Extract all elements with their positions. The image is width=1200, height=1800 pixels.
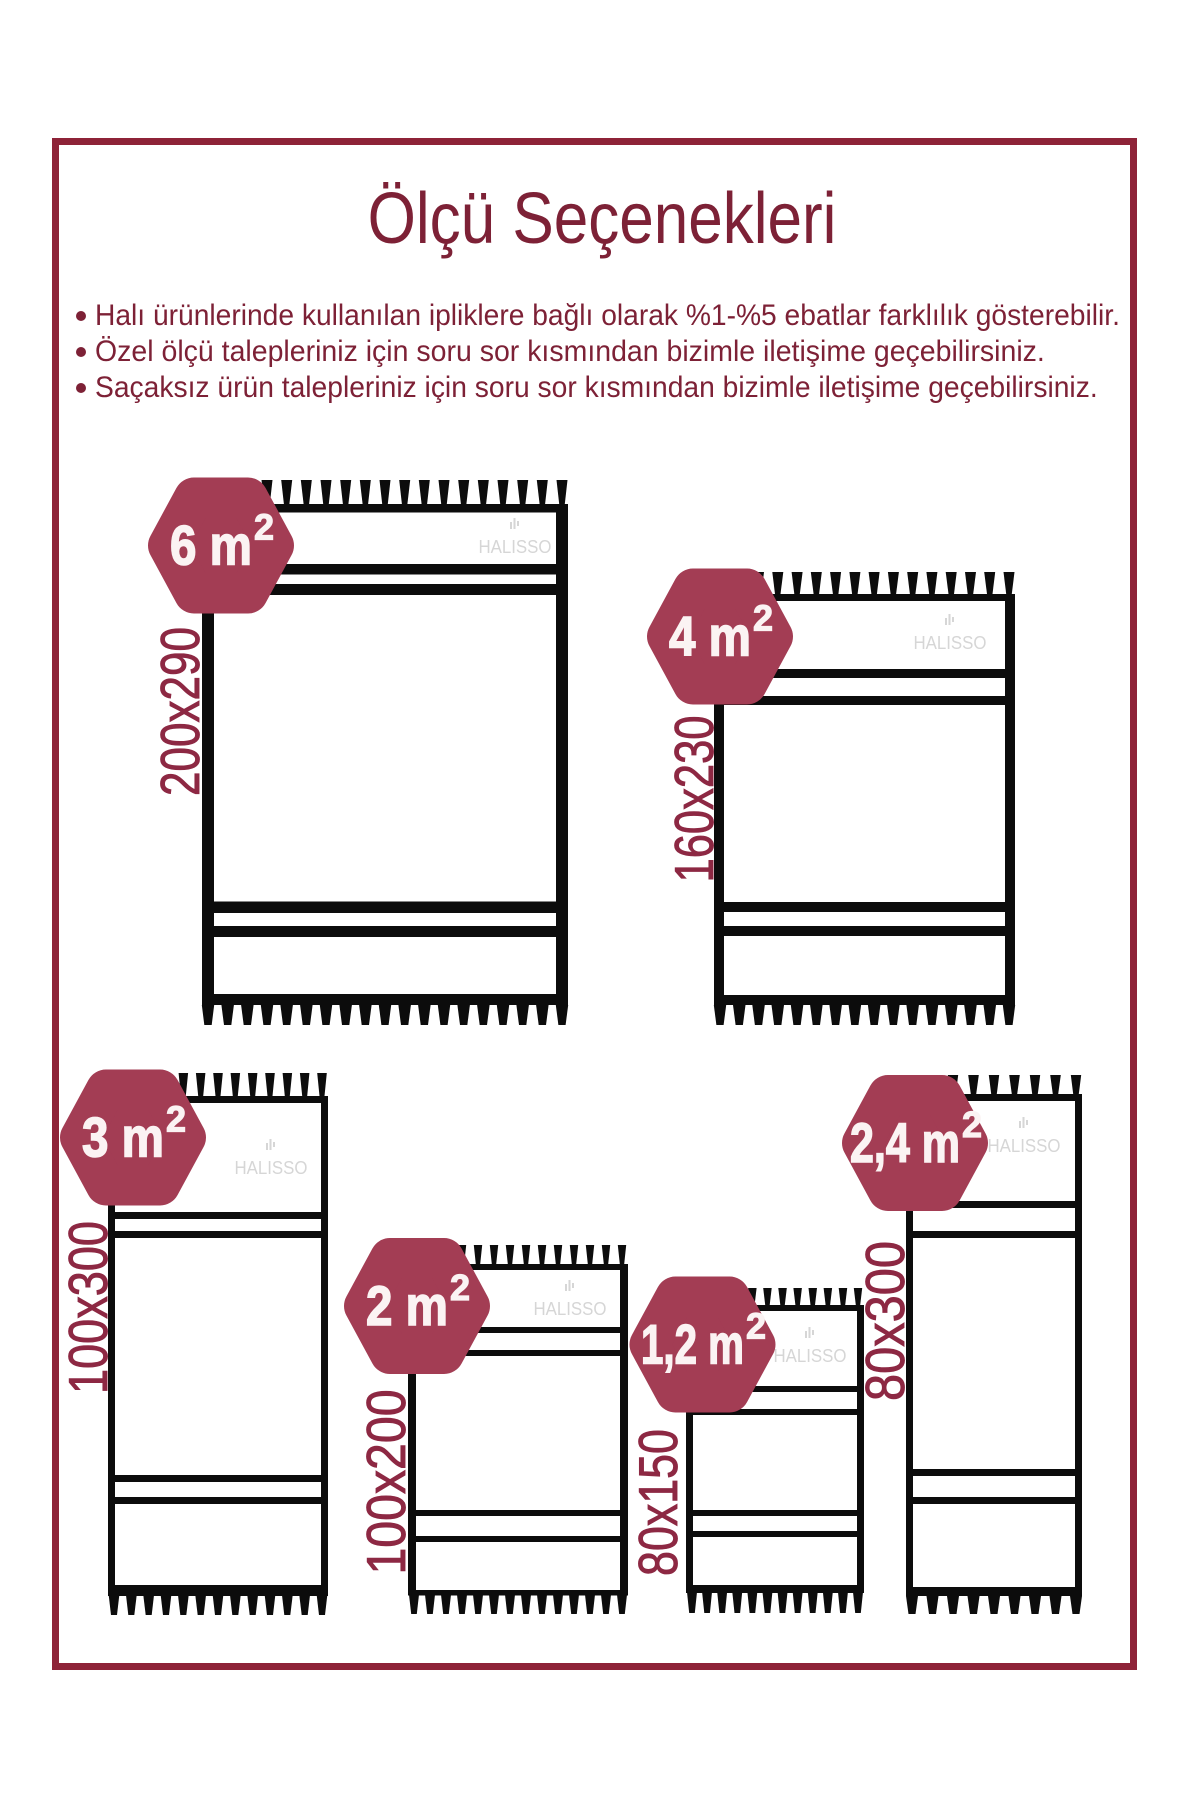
svg-text:160x230: 160x230 <box>663 716 725 883</box>
svg-text:2: 2 <box>450 1267 470 1308</box>
svg-text:2: 2 <box>166 1099 186 1140</box>
svg-text:Ölçü Seçenekleri: Ölçü Seçenekleri <box>368 179 837 259</box>
svg-text:1,2 m: 1,2 m <box>641 1314 744 1376</box>
svg-text:Saçaksız ürün talepleriniz içi: Saçaksız ürün talepleriniz için soru sor… <box>95 371 1098 404</box>
svg-text:Özel ölçü talepleriniz için so: Özel ölçü talepleriniz için soru sor kıs… <box>95 335 1045 368</box>
svg-text:2: 2 <box>254 507 274 548</box>
svg-text:80x300: 80x300 <box>855 1241 916 1401</box>
svg-text:2: 2 <box>753 598 773 639</box>
svg-text:HALISSO: HALISSO <box>988 1135 1061 1156</box>
svg-text:200x290: 200x290 <box>149 627 211 796</box>
svg-text:Halı ürünlerinde kullanılan ip: Halı ürünlerinde kullanılan ipliklere ba… <box>95 299 1120 332</box>
svg-text:2: 2 <box>962 1104 982 1145</box>
svg-text:80x150: 80x150 <box>628 1429 689 1576</box>
svg-text:100x300: 100x300 <box>57 1221 119 1394</box>
svg-text:HALISSO: HALISSO <box>914 632 987 653</box>
svg-text:2: 2 <box>746 1306 766 1347</box>
svg-text:4 m: 4 m <box>669 606 751 669</box>
svg-text:2,4 m: 2,4 m <box>850 1112 960 1175</box>
svg-text:HALISSO: HALISSO <box>235 1157 308 1178</box>
svg-text:HALISSO: HALISSO <box>774 1345 847 1366</box>
svg-text:100x200: 100x200 <box>355 1389 417 1574</box>
svg-text:6 m: 6 m <box>170 515 252 578</box>
svg-text:2 m: 2 m <box>366 1275 448 1338</box>
svg-text:HALISSO: HALISSO <box>479 536 552 557</box>
svg-text:3 m: 3 m <box>82 1107 164 1170</box>
svg-text:HALISSO: HALISSO <box>534 1298 607 1319</box>
